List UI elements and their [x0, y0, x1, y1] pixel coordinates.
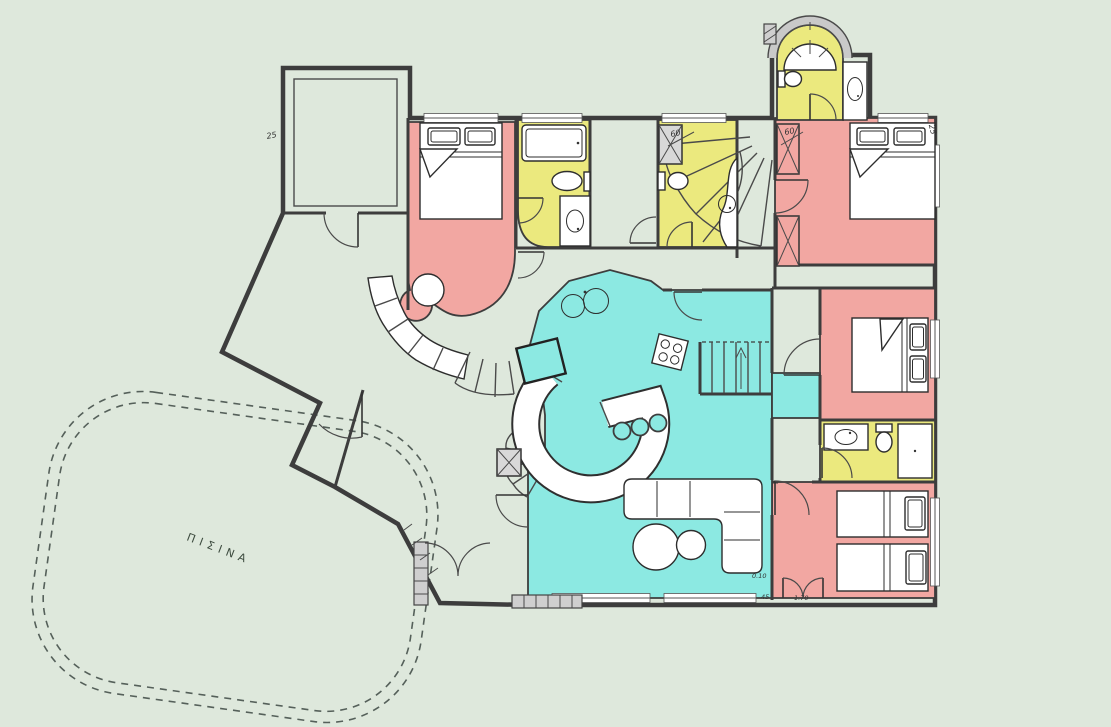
toilet	[876, 432, 892, 452]
bed-double-2	[850, 123, 935, 219]
shaft-basement-stair	[497, 449, 521, 476]
toilet	[552, 172, 582, 191]
coffee-table-small	[677, 531, 706, 560]
dim-offset: 0.10	[752, 572, 766, 580]
floor-plan-canvas: ΠΙΣΙΝΑ	[0, 0, 1111, 727]
dim-jamb: 45	[761, 593, 769, 601]
closet-bedroom2-bottom	[777, 216, 799, 266]
vanity	[824, 424, 868, 450]
floor-plan-drawing: ΠΙΣΙΝΑ	[0, 0, 1111, 727]
bed-twin-a	[837, 491, 928, 537]
toilet	[785, 72, 802, 87]
toilet	[668, 173, 688, 190]
cooktop	[652, 334, 688, 370]
entry-nook	[772, 373, 820, 418]
stairs-straight	[702, 342, 770, 393]
round-table	[412, 274, 444, 306]
kitchen-faucet	[584, 291, 587, 294]
bed-twin-b	[837, 544, 928, 591]
bed-double-3	[852, 318, 928, 392]
bathtub	[522, 125, 586, 161]
vanity	[560, 196, 590, 246]
bed-double-1	[420, 123, 502, 219]
shower	[843, 62, 867, 120]
dim-door-width: 1.70	[794, 594, 808, 602]
dim-left-wall: 25	[266, 130, 278, 141]
coffee-table-large	[633, 524, 679, 570]
chimney-hatch	[764, 24, 776, 44]
